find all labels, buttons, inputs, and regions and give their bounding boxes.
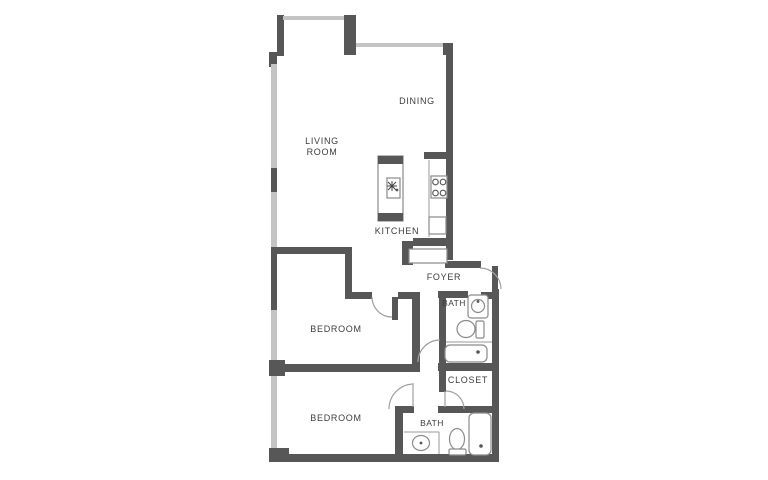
faucet-dot	[396, 189, 399, 192]
room-label-bath-lower: BATH	[417, 418, 447, 429]
wall	[344, 15, 356, 55]
toilet-tank	[449, 449, 466, 455]
wall	[271, 247, 348, 254]
wall	[345, 292, 372, 299]
wall	[446, 43, 453, 260]
room-label-foyer: FOYER	[424, 272, 464, 283]
bath-lower-door-arc	[389, 384, 414, 409]
walls-layer	[269, 15, 499, 462]
sink-drain-dot	[420, 442, 423, 445]
toilet-icon	[457, 321, 475, 338]
kitchen-island-cap	[378, 156, 403, 164]
toilet-icon	[450, 429, 465, 450]
wall	[412, 292, 420, 372]
room-label-kitchen: KITCHEN	[367, 226, 427, 237]
wall	[277, 15, 284, 56]
wall	[345, 247, 352, 297]
window-wall	[271, 310, 277, 362]
living-room-line1: LIVING	[294, 136, 350, 147]
bedroom-upper-door-arc	[372, 297, 392, 317]
wall	[395, 406, 403, 455]
toilet-tank	[476, 321, 484, 338]
room-label-closet: CLOSET	[444, 375, 492, 386]
wall	[438, 406, 492, 413]
living-room-line2: ROOM	[294, 147, 350, 158]
window-wall	[356, 43, 443, 47]
window-wall	[271, 376, 277, 450]
bedroom-lower-door-arc	[418, 340, 440, 362]
wall	[438, 363, 499, 371]
window-wall	[283, 16, 345, 20]
window-wall	[271, 64, 277, 168]
tub-drain-dot	[476, 350, 480, 354]
sink-drain-dot	[477, 300, 480, 303]
room-label-bath-upper: BATH	[440, 298, 468, 309]
wall	[271, 168, 277, 192]
wall	[492, 289, 499, 462]
floorplan-drawing	[0, 0, 768, 480]
room-label-bedroom-lower: BEDROOM	[306, 413, 366, 424]
wall	[271, 248, 277, 310]
bedroom-upper-door-leaf	[392, 297, 398, 320]
bathtub-icon	[445, 345, 487, 362]
room-label-bedroom-upper: BEDROOM	[306, 324, 366, 335]
foyer-cabinet-icon	[409, 249, 447, 263]
wall	[445, 261, 481, 268]
tub-drain-dot	[479, 444, 483, 448]
room-label-living-room: LIVING ROOM	[294, 136, 350, 158]
wall	[271, 364, 413, 372]
kitchen-cabinet-icon	[429, 217, 446, 234]
floorplan-canvas: LIVING ROOM DINING KITCHEN FOYER BATH BE…	[0, 0, 768, 480]
faucet-icon	[387, 181, 397, 191]
window-wall	[271, 192, 277, 248]
bathtub-icon	[469, 413, 491, 455]
room-label-dining: DINING	[396, 96, 438, 107]
wall	[424, 152, 453, 159]
kitchen-island-cap	[378, 213, 403, 221]
wall	[413, 238, 453, 246]
entry-door-leaf	[492, 266, 498, 292]
